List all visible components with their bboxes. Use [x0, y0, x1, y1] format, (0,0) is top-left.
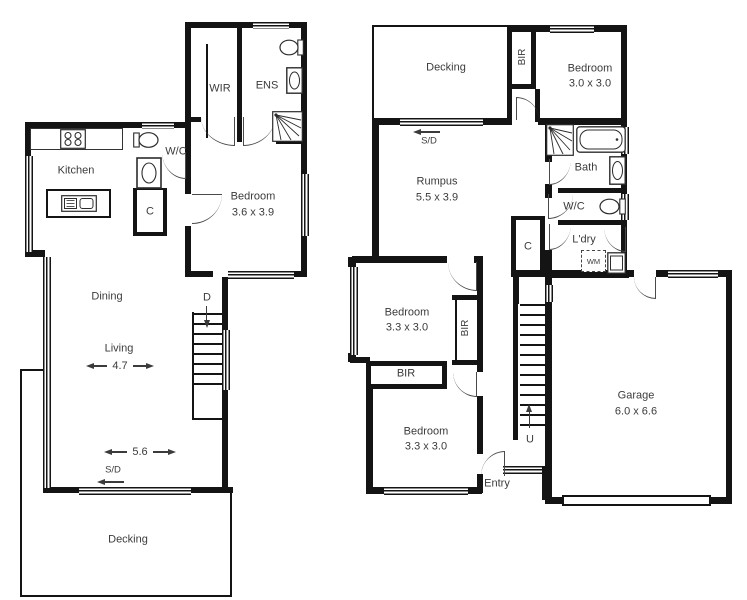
dimension-living-width: 4.7: [86, 360, 154, 372]
sliding-door-arrow: [97, 478, 124, 486]
room-label-decking: Decking: [426, 63, 466, 74]
window: [43, 257, 51, 488]
window: [25, 156, 33, 252]
room-dims-garage: 6.0 x 6.6: [615, 407, 657, 418]
room-label-robe-mid: BIR: [461, 320, 471, 337]
room-label-bath: Bath: [575, 163, 598, 174]
toilet-icon: [599, 197, 626, 216]
room-dims-bedroom-low: 3.3 x 3.0: [405, 442, 447, 453]
room-label-robe-top: BIR: [518, 49, 528, 66]
sink-icon: [61, 195, 97, 212]
room-label-entry: Entry: [484, 479, 510, 490]
room-label-decking: Decking: [108, 535, 148, 546]
room-label-robe-low: BIR: [397, 369, 415, 380]
toilet-icon: [279, 38, 304, 57]
window: [668, 270, 718, 278]
door-arc: [549, 159, 571, 185]
door-arc: [481, 451, 505, 476]
sliding-door: [400, 118, 483, 126]
room-label-wc: W/C: [563, 202, 584, 213]
sliding-door-label: S/D: [105, 465, 121, 475]
door-arc: [604, 227, 626, 252]
sliding-door-label: S/D: [421, 136, 437, 146]
door-arc: [549, 224, 571, 250]
room-label-garage: Garage: [618, 391, 655, 402]
room-label-dining: Dining: [91, 292, 122, 303]
window: [550, 25, 594, 33]
bathtub-icon: [576, 126, 626, 153]
room-label-kitchen: Kitchen: [58, 166, 95, 177]
sliding-door: [79, 487, 191, 495]
sliding-door-arrow: [413, 128, 440, 136]
room-label-wc: W/C: [165, 147, 186, 158]
window: [301, 174, 309, 236]
door-arc: [634, 277, 656, 299]
room-dims-bedroom-top: 3.0 x 3.0: [569, 79, 611, 90]
toilet-icon: [133, 131, 160, 149]
door-arc: [201, 117, 235, 146]
room-dims-bedroom: 3.6 x 3.9: [232, 208, 274, 219]
room-label-wir: WIR: [209, 84, 230, 95]
door-arc: [243, 117, 275, 146]
window: [545, 285, 553, 302]
room-label-living: Living: [105, 344, 134, 355]
basin-icon: [286, 67, 303, 94]
room-label-bedroom-top: Bedroom: [568, 64, 613, 75]
floor-plan: Kitchen W/C C WIR ENS Bedroom 3.6 x 3.9 …: [0, 0, 747, 600]
stairs-up-label: U: [526, 435, 534, 446]
room-label-rumpus: Rumpus: [417, 177, 458, 188]
stairs-down-label: D: [203, 293, 211, 304]
window: [350, 267, 358, 355]
room-label-bedroom: Bedroom: [231, 192, 276, 203]
room-dims-rumpus: 5.5 x 3.9: [416, 193, 458, 204]
window: [142, 122, 174, 129]
washing-machine-icon: WM: [581, 250, 606, 272]
shower-icon: [272, 111, 303, 142]
window: [222, 330, 230, 390]
window: [253, 22, 289, 29]
room-label-bedroom-low: Bedroom: [404, 427, 449, 438]
room-label-laundry: L'dry: [572, 235, 596, 246]
room-label-ens: ENS: [256, 81, 279, 92]
window: [228, 271, 294, 279]
window: [503, 466, 542, 474]
door-arc: [448, 262, 477, 291]
window: [384, 487, 468, 495]
dimension-living-length: 5.6: [104, 446, 176, 458]
cooktop-icon: [60, 129, 86, 149]
basin-icon: [136, 157, 162, 189]
room-dims-bedroom-mid: 3.3 x 3.0: [386, 323, 428, 334]
room-label-cupboard: C: [524, 242, 532, 253]
shower-icon: [546, 124, 574, 156]
door-arc: [453, 372, 477, 397]
door-arc: [192, 194, 222, 224]
room-label-cupboard: C: [146, 207, 154, 218]
room-label-bedroom-mid: Bedroom: [385, 308, 430, 319]
basin-icon: [609, 156, 626, 185]
laundry-tub-icon: [607, 252, 626, 274]
